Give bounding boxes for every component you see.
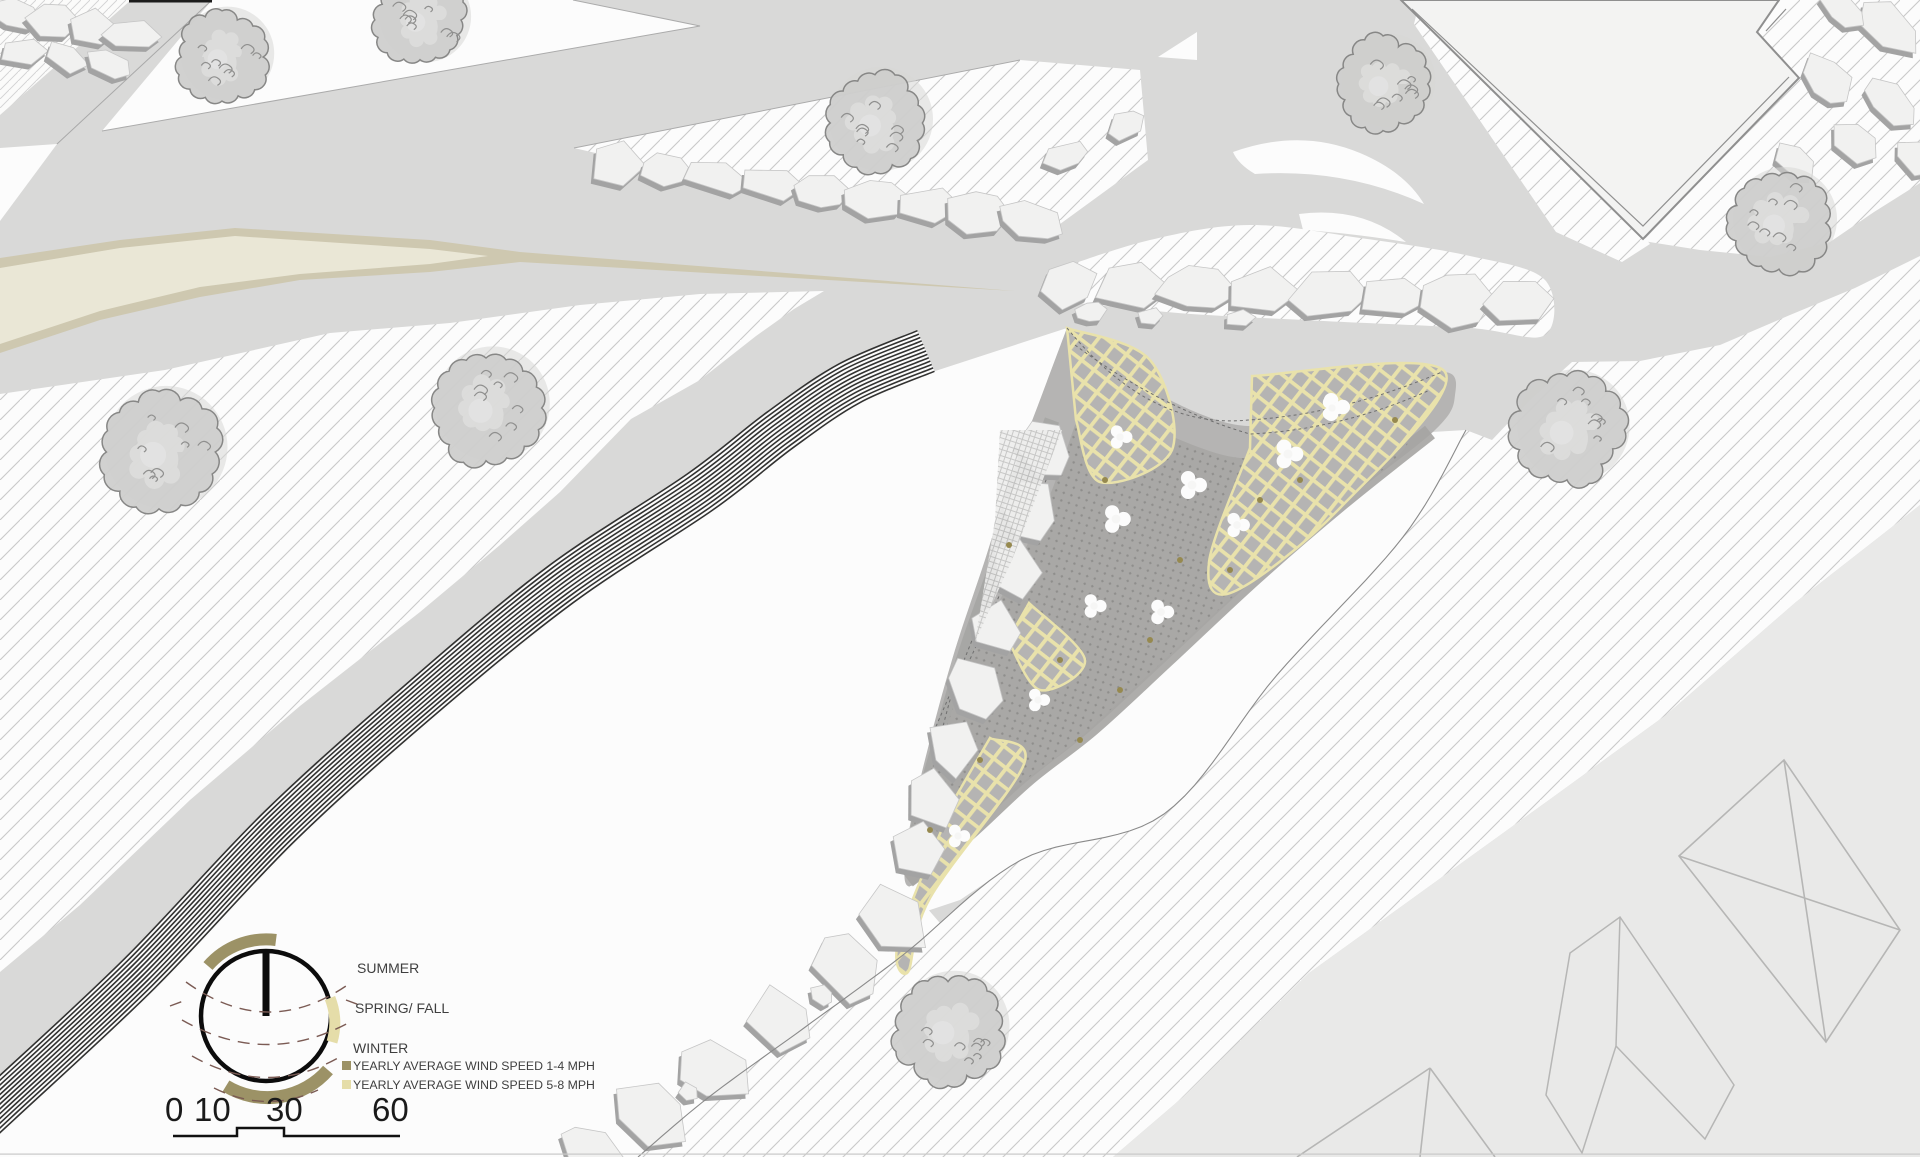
svg-text:30: 30	[266, 1091, 303, 1128]
svg-text:WINTER: WINTER	[353, 1040, 408, 1056]
svg-text:60: 60	[372, 1091, 409, 1128]
svg-text:YEARLY AVERAGE WIND SPEED 5-8: YEARLY AVERAGE WIND SPEED 5-8 MPH	[353, 1078, 595, 1092]
svg-text:SUMMER: SUMMER	[357, 960, 419, 976]
svg-text:0: 0	[165, 1091, 183, 1128]
svg-text:10: 10	[194, 1091, 231, 1128]
svg-text:YEARLY AVERAGE WIND SPEED 1-4: YEARLY AVERAGE WIND SPEED 1-4 MPH	[353, 1059, 595, 1073]
svg-text:SPRING/ FALL: SPRING/ FALL	[355, 1000, 449, 1016]
